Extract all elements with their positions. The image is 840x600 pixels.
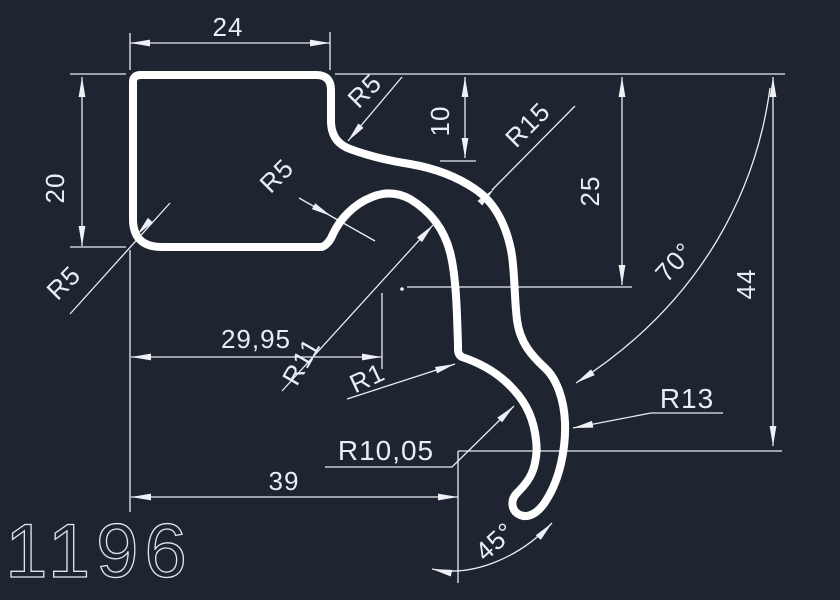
dim-width-39-label: 39 (269, 466, 300, 496)
dim-width-top-label: 24 (213, 12, 244, 42)
dim-width-2995-label: 29,95 (221, 324, 291, 354)
dim-offset-10-label: 10 (425, 106, 455, 137)
cad-drawing-viewport: 24 20 R5 10 R15 25 R5 R5 70° 44 29,95 R1… (0, 0, 840, 600)
dim-height-25-label: 25 (575, 176, 605, 207)
dim-height-44-label: 44 (731, 269, 761, 300)
dim-height-left-label: 20 (40, 173, 70, 204)
radius-r13-label: R13 (660, 383, 714, 414)
center-point-marker (400, 287, 404, 291)
part-number-label: 1196 (5, 509, 192, 594)
radius-r10-05-label: R10,05 (338, 435, 434, 466)
cad-drawing-canvas[interactable]: 24 20 R5 10 R15 25 R5 R5 70° 44 29,95 R1… (0, 0, 840, 600)
